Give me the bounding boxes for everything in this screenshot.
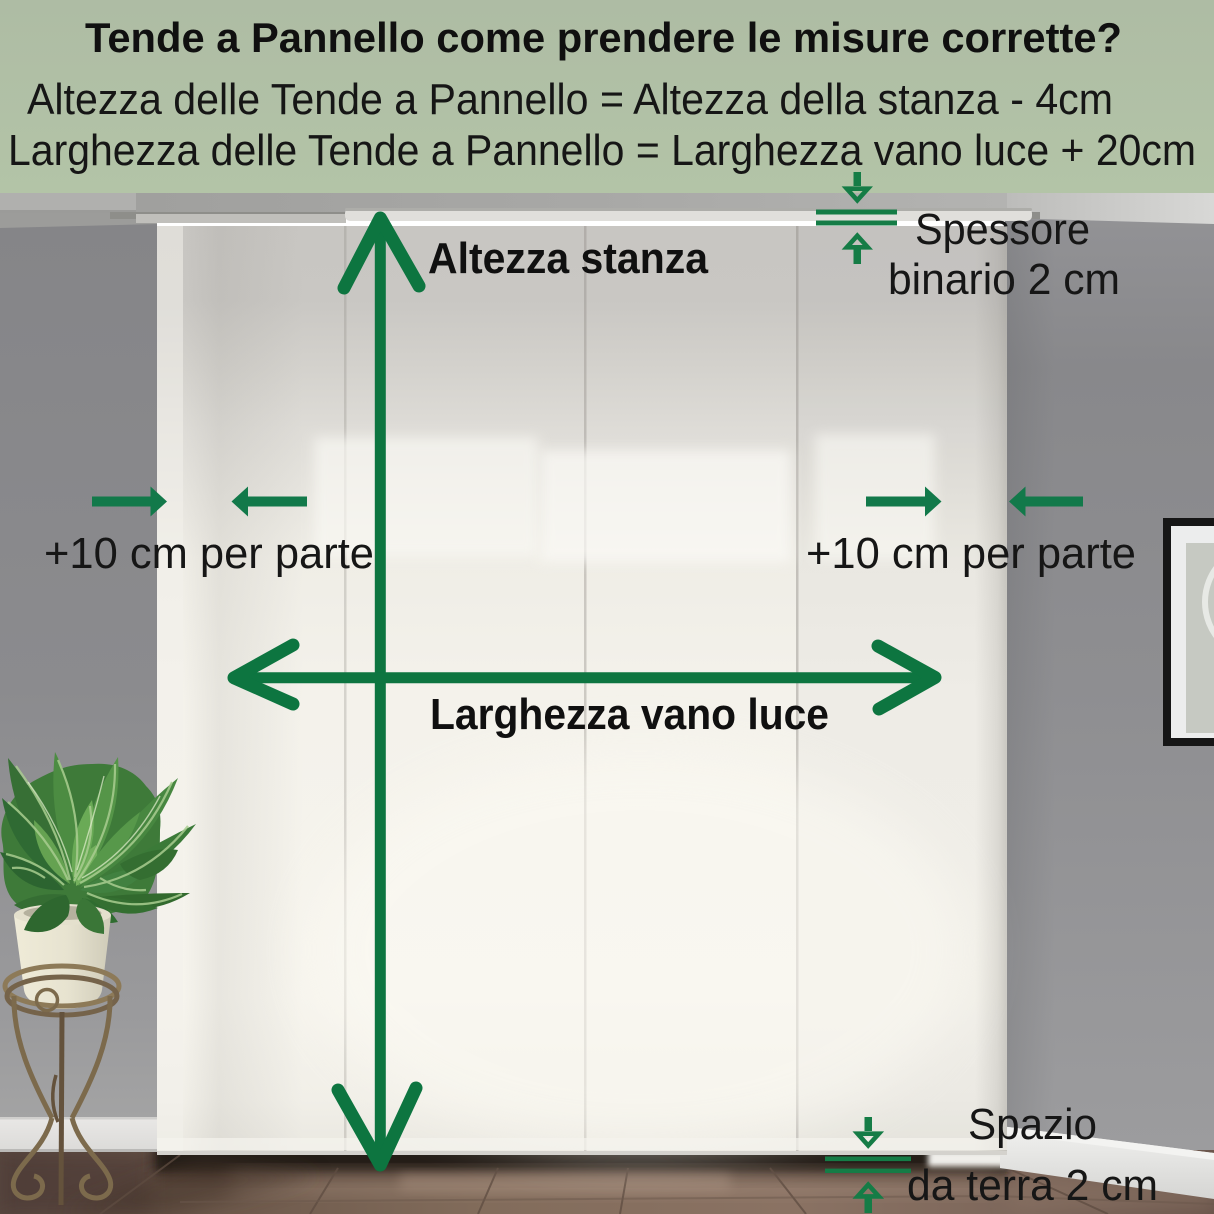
svg-text:Spessore: Spessore: [915, 205, 1090, 254]
svg-text:Altezza stanza: Altezza stanza: [428, 234, 708, 283]
svg-text:Altezza delle Tende a Pannello: Altezza delle Tende a Pannello = Altezza…: [27, 75, 1113, 124]
svg-text:Larghezza vano luce: Larghezza vano luce: [430, 690, 829, 739]
svg-text:binario 2 cm: binario 2 cm: [888, 255, 1120, 304]
svg-text:da terra 2 cm: da terra 2 cm: [907, 1161, 1158, 1210]
svg-text:+10 cm per parte: +10 cm per parte: [806, 529, 1136, 578]
svg-text:Larghezza delle Tende a Pannel: Larghezza delle Tende a Pannello = Largh…: [8, 126, 1196, 175]
svg-text:Tende a Pannello come prendere: Tende a Pannello come prendere le misure…: [85, 14, 1122, 61]
svg-text:+10 cm per parte: +10 cm per parte: [44, 529, 374, 578]
svg-text:Spazio: Spazio: [968, 1100, 1097, 1149]
